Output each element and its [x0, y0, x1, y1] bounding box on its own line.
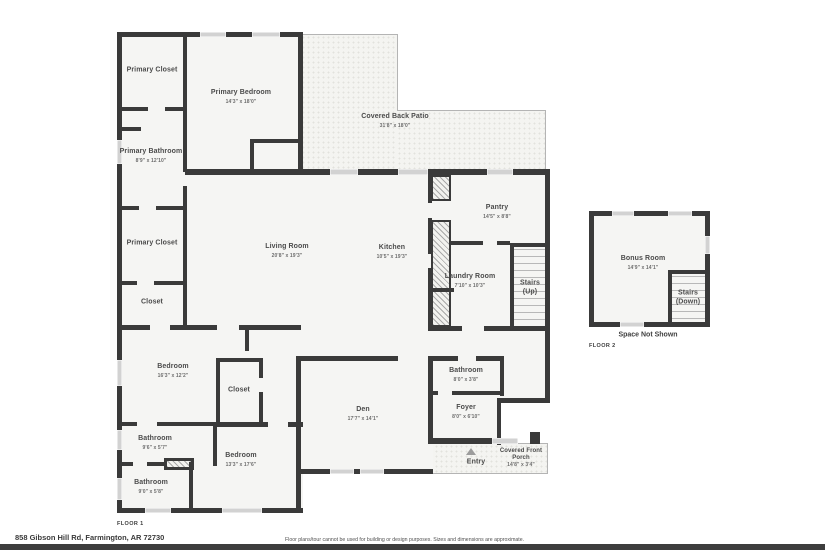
space-not-shown-label: Space Not Shown — [618, 332, 677, 341]
floor-2-label: FLOOR 2 — [589, 343, 616, 349]
wall — [530, 432, 540, 444]
wall — [296, 356, 398, 361]
fireplace-fixture — [431, 175, 451, 201]
wall — [428, 356, 458, 361]
wall — [288, 422, 303, 427]
wall — [500, 356, 504, 396]
wall — [510, 243, 548, 247]
room-label-stairs-up: Stairs (Up) — [520, 279, 540, 297]
room-label-primary-bathroom: Primary Bathroom 8'9" x 12'10" — [120, 148, 183, 164]
window — [145, 508, 171, 513]
entry-arrow-icon — [466, 448, 476, 455]
room-label-stairs-down: Stairs (Down) — [676, 289, 700, 307]
window — [117, 478, 122, 500]
wall — [183, 32, 187, 112]
window — [360, 469, 384, 474]
window — [705, 236, 710, 254]
wall — [117, 325, 150, 330]
room-label-closet-2: Closet — [228, 387, 250, 396]
window — [222, 508, 262, 513]
room-label-primary-closet-2: Primary Closet — [127, 240, 178, 249]
window — [330, 169, 358, 175]
room-label-laundry-room: Laundry Room 7'10" x 10'3" — [445, 273, 496, 289]
wall — [298, 32, 303, 174]
room-label-bathroom-2: Bathroom 9'0" x 5'8" — [134, 479, 168, 495]
wall — [500, 398, 550, 403]
wall — [183, 110, 187, 172]
window — [487, 169, 513, 175]
wall — [589, 322, 710, 327]
wall — [170, 325, 217, 330]
window — [117, 430, 122, 450]
window — [200, 32, 226, 37]
wall — [213, 422, 217, 466]
wall — [189, 462, 193, 512]
floor-1-label: FLOOR 1 — [117, 521, 144, 527]
wall — [589, 211, 594, 327]
window — [668, 211, 692, 216]
window — [620, 322, 644, 327]
wall — [668, 270, 710, 274]
wall — [157, 422, 217, 426]
room-label-bedroom-1: Bedroom 16'3" x 12'2" — [157, 363, 188, 379]
wall — [117, 206, 139, 210]
wall — [259, 358, 263, 378]
window — [398, 169, 428, 175]
floor1-interior — [185, 169, 430, 361]
wall — [497, 241, 510, 245]
entry-threshold — [492, 438, 518, 444]
wall — [117, 462, 133, 466]
room-label-bedroom-2: Bedroom 13'3" x 17'6" — [225, 452, 256, 468]
footer-bar — [0, 544, 825, 550]
room-label-bathroom-3: Bathroom 8'0" x 3'8" — [449, 367, 483, 383]
wall — [296, 356, 301, 513]
wall — [117, 281, 137, 285]
room-label-primary-closet-1: Primary Closet — [127, 67, 178, 76]
room-label-closet-1: Closet — [141, 299, 163, 308]
wall — [216, 358, 263, 362]
wall — [428, 326, 462, 331]
wall — [545, 169, 550, 403]
window — [330, 469, 354, 474]
window — [612, 211, 634, 216]
wall — [428, 391, 438, 395]
floor-plan: Primary Closet Primary Bedroom 14'3" x 1… — [0, 0, 825, 550]
wall — [117, 107, 148, 111]
room-label-pantry: Pantry 14'5" x 8'8" — [483, 204, 511, 220]
wall — [705, 211, 710, 327]
window — [117, 360, 122, 386]
wall — [121, 127, 141, 131]
disclaimer-text: Floor plans/tour cannot be used for buil… — [285, 537, 524, 543]
property-address: 858 Gibson Hill Rd, Farmington, AR 72730 — [15, 533, 164, 542]
covered-back-patio-area — [300, 34, 398, 174]
wall — [253, 139, 298, 143]
wall — [183, 208, 187, 328]
wall — [183, 186, 187, 208]
room-label-covered-front-porch: Covered Front Porch 14'8" x 3'4" — [491, 448, 551, 468]
room-label-foyer: Foyer 8'0" x 6'10" — [452, 404, 480, 420]
wall — [428, 438, 492, 444]
wall — [147, 462, 165, 466]
room-label-living-room: Living Room 20'8" x 19'3" — [265, 243, 309, 259]
wall — [117, 422, 137, 426]
window — [252, 32, 280, 37]
wall — [428, 356, 433, 444]
wall — [245, 330, 249, 351]
room-label-bonus-room: Bonus Room 14'9" x 14'1" — [621, 255, 666, 271]
floor1-interior — [428, 330, 550, 398]
wall — [250, 139, 254, 172]
room-label-covered-back-patio: Covered Back Patio 31'8" x 18'0" — [361, 113, 429, 129]
wall — [154, 281, 187, 285]
wall — [484, 326, 550, 331]
room-label-primary-bedroom: Primary Bedroom 14'3" x 18'0" — [211, 89, 271, 105]
wall — [259, 392, 263, 426]
wall — [452, 391, 504, 395]
room-label-entry: Entry — [467, 459, 485, 468]
room-label-bathroom-1: Bathroom 9'6" x 5'7" — [138, 435, 172, 451]
room-label-den: Den 17'7" x 14'1" — [348, 406, 379, 422]
wall — [216, 358, 220, 426]
room-label-kitchen: Kitchen 10'5" x 19'3" — [377, 244, 408, 260]
wall — [451, 241, 483, 245]
